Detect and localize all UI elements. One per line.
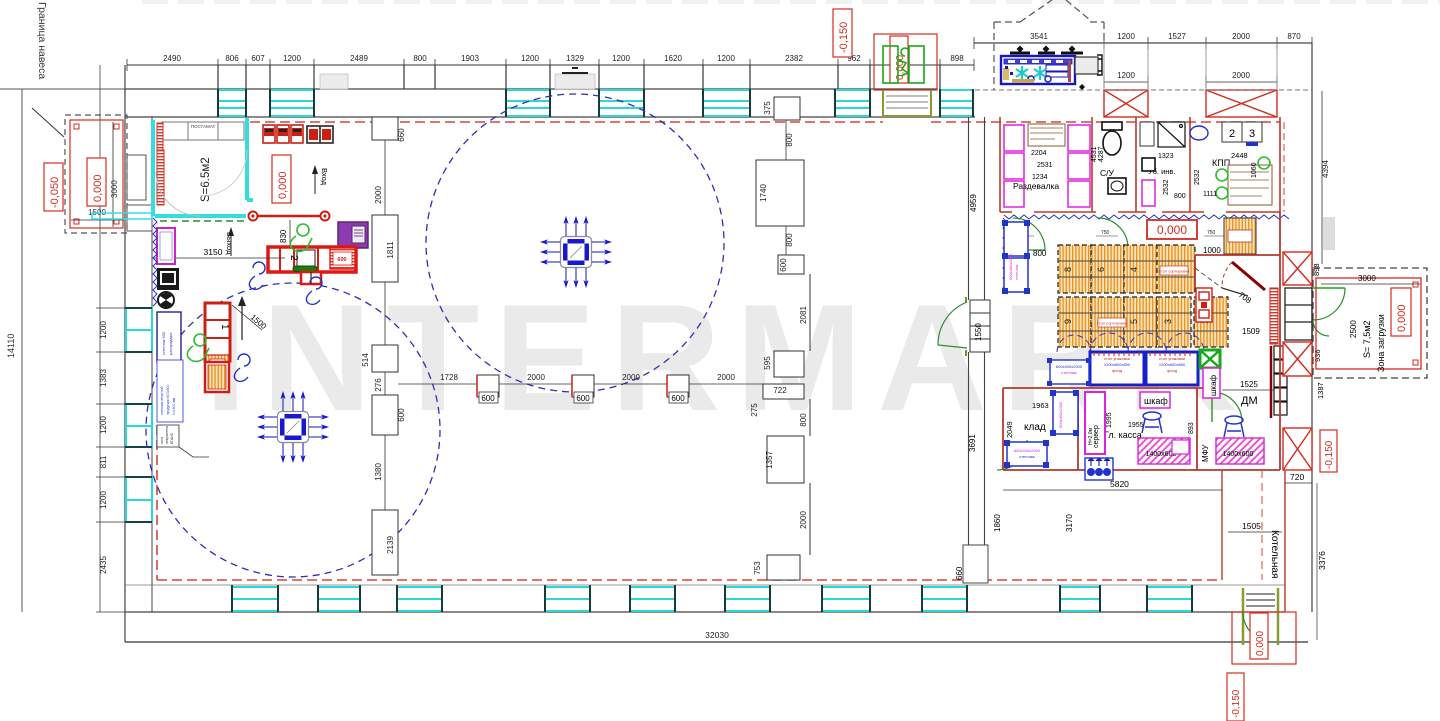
svg-text:811: 811 [99,455,108,468]
svg-text:1200: 1200 [521,54,539,63]
svg-text:3691: 3691 [968,434,977,452]
svg-text:4531: 4531 [1091,146,1098,162]
svg-text:0,000: 0,000 [1396,304,1408,332]
svg-text:2049: 2049 [1005,421,1014,438]
svg-text:S= 7,5м2: S= 7,5м2 [1362,321,1372,358]
svg-text:3376: 3376 [1317,551,1327,570]
svg-text:1527: 1527 [1168,32,1186,41]
svg-text:32030: 32030 [705,630,729,640]
svg-text:276: 276 [374,378,383,392]
svg-text:898: 898 [950,54,964,63]
svg-text:6: 6 [1096,267,1106,272]
svg-text:2: 2 [1229,128,1235,140]
svg-text:2435: 2435 [99,556,108,574]
svg-text:1550: 1550 [974,323,983,341]
svg-text:607: 607 [251,54,265,63]
svg-text:800: 800 [413,54,427,63]
svg-text:0,000: 0,000 [92,174,104,202]
svg-text:600х400х2000: 600х400х2000 [1008,253,1013,280]
svg-text:2531: 2531 [1037,162,1053,169]
svg-text:2000: 2000 [1232,71,1250,80]
svg-text:600х400х2000: 600х400х2000 [1014,448,1041,453]
svg-text:4394: 4394 [1321,160,1330,178]
svg-text:800: 800 [785,233,794,247]
svg-text:1200: 1200 [99,491,108,509]
svg-text:753: 753 [753,561,762,575]
svg-text:1509: 1509 [1242,327,1260,336]
svg-text:14110: 14110 [6,334,16,358]
svg-text:3: 3 [1163,319,1173,324]
svg-text:2000: 2000 [799,511,808,529]
svg-text:1728: 1728 [440,373,458,382]
svg-text:893: 893 [1188,422,1195,434]
svg-text:1620: 1620 [664,54,682,63]
svg-text:2139: 2139 [386,536,395,554]
svg-text:936: 936 [1313,349,1322,362]
svg-text:2000: 2000 [1232,32,1250,41]
svg-text:870: 870 [1287,32,1301,41]
svg-text:0,000: 0,000 [895,55,906,80]
svg-text:3000: 3000 [1358,274,1376,283]
svg-text:0,000: 0,000 [1157,223,1187,237]
svg-text:1200: 1200 [1117,71,1135,80]
svg-text:3170: 3170 [1065,514,1074,532]
svg-text:ПОСТАМАТ: ПОСТАМАТ [191,124,216,129]
svg-text:1234: 1234 [1032,174,1048,181]
svg-text:2081: 2081 [799,306,808,324]
svg-text:2000: 2000 [527,373,545,382]
svg-text:800: 800 [1174,193,1186,200]
svg-text:Вход: Вход [320,168,329,186]
svg-text:1811: 1811 [386,241,395,259]
svg-text:1963: 1963 [1032,401,1049,410]
svg-text:-0,050: -0,050 [49,177,61,208]
svg-text:3000: 3000 [110,180,119,198]
svg-text:600: 600 [397,408,406,422]
svg-text:1955: 1955 [1128,422,1144,429]
svg-text:0,000: 0,000 [1255,631,1266,656]
svg-text:1525: 1525 [1240,380,1258,389]
svg-text:ДМ: ДМ [1241,395,1258,407]
svg-text:1200х800х850: 1200х800х850 [1159,362,1186,367]
svg-text:1200: 1200 [283,54,301,63]
svg-text:продукции 600х400: продукции 600х400 [166,385,170,415]
svg-text:1200: 1200 [99,321,108,339]
svg-text:Гл. касса: Гл. касса [1104,430,1142,440]
svg-text:600: 600 [671,394,685,403]
svg-text:2489: 2489 [350,54,368,63]
svg-text:h=1600 мм: h=1600 мм [172,397,176,415]
svg-text:4: 4 [1129,267,1139,272]
svg-text:375: 375 [763,101,772,115]
svg-text:275: 275 [750,403,759,417]
svg-text:600: 600 [576,394,590,403]
svg-text:КПП: КПП [1212,158,1230,168]
svg-text:1200: 1200 [612,54,630,63]
svg-text:2382: 2382 [785,54,803,63]
svg-text:2: 2 [288,255,299,261]
svg-text:4959: 4959 [969,194,978,212]
svg-text:стол упаковки: стол упаковки [1159,356,1185,361]
svg-text:2204: 2204 [1031,150,1047,157]
svg-text:1740: 1740 [759,184,768,202]
svg-text:2532: 2532 [1194,169,1201,185]
svg-text:1200х800х850: 1200х800х850 [1104,362,1131,367]
svg-text:стол сортировки: стол сортировки [1097,321,1127,326]
svg-text:600х400х2000: 600х400х2000 [1058,401,1063,428]
svg-text:зона: зона [160,437,164,444]
svg-text:Раздевалка: Раздевалка [1013,181,1059,191]
svg-text:1383: 1383 [99,369,108,387]
svg-text:-0,150: -0,150 [838,22,850,53]
svg-text:1: 1 [219,324,230,330]
svg-text:1200: 1200 [1117,32,1135,41]
svg-text:2532: 2532 [1163,179,1170,195]
svg-text:8: 8 [1063,267,1073,272]
svg-text:1860: 1860 [993,514,1002,532]
svg-text:H=2,0м: H=2,0м [1088,428,1094,445]
svg-text:шкаф: шкаф [1144,396,1168,406]
svg-text:2000: 2000 [622,373,640,382]
svg-text:-0,150: -0,150 [1231,689,1242,718]
svg-text:720: 720 [1290,472,1304,482]
svg-text:5: 5 [1129,319,1139,324]
svg-text:ЕГАИС: ЕГАИС [170,432,174,444]
svg-text:2500: 2500 [1349,320,1358,338]
svg-text:1329: 1329 [566,54,584,63]
svg-text:1380: 1380 [374,463,383,481]
svg-text:660: 660 [397,128,406,142]
svg-text:3: 3 [1249,128,1255,140]
svg-text:фонд: фонд [1167,368,1178,373]
svg-text:-0,150: -0,150 [1324,440,1335,469]
svg-text:1200: 1200 [99,416,108,434]
svg-text:стеллаж: стеллаж [1014,264,1019,280]
svg-text:1903: 1903 [461,54,479,63]
svg-text:800: 800 [1033,249,1047,258]
svg-text:1323: 1323 [1158,153,1174,160]
svg-text:фонд: фонд [1112,368,1123,373]
svg-text:722: 722 [773,386,787,395]
svg-text:2000: 2000 [717,373,735,382]
svg-text:С/У: С/У [1100,168,1115,178]
svg-text:600х400х2000: 600х400х2000 [1056,364,1083,369]
svg-text:Граница навеса: Граница навеса [36,2,48,79]
svg-text:клад: клад [1024,422,1046,433]
svg-text:Котельная: Котельная [1269,530,1280,578]
svg-text:3541: 3541 [1030,32,1048,41]
svg-text:1995: 1995 [1106,412,1113,428]
svg-text:1387: 1387 [1316,382,1325,399]
svg-text:МФУ: МФУ [1201,444,1210,462]
svg-text:2490: 2490 [163,54,181,63]
svg-text:распродажа: распродажа [168,332,173,355]
svg-text:2448: 2448 [1231,151,1248,160]
svg-text:0,000: 0,000 [277,171,289,199]
svg-text:стеллаж: стеллаж [1019,454,1035,459]
svg-text:1505: 1505 [1242,521,1261,531]
svg-text:Зона загрузки: Зона загрузки [1376,314,1386,372]
svg-text:1400х600: 1400х600 [1223,451,1254,458]
svg-text:2000: 2000 [374,186,383,204]
svg-text:9: 9 [1063,319,1073,324]
svg-text:830: 830 [279,229,288,243]
svg-text:1200: 1200 [717,54,735,63]
svg-text:600: 600 [481,394,495,403]
svg-text:1357: 1357 [765,451,774,469]
svg-text:600: 600 [779,258,788,272]
svg-text:стеллаж 600: стеллаж 600 [161,331,166,355]
svg-text:стол сортировки: стол сортировки [1159,269,1189,274]
svg-text:800: 800 [785,133,794,147]
svg-text:1060: 1060 [1251,162,1258,178]
svg-text:5820: 5820 [1110,479,1129,489]
svg-text:595: 595 [763,356,772,370]
svg-text:514: 514 [361,353,370,367]
svg-text:стол упаковки: стол упаковки [1104,356,1130,361]
svg-text:стеллаж печатной: стеллаж печатной [160,386,164,415]
svg-text:750: 750 [1207,230,1216,236]
svg-text:стеллаж: стеллаж [1061,370,1077,375]
svg-text:шкаф: шкаф [1209,374,1218,396]
svg-text:сервер: сервер [1093,425,1100,448]
svg-text:1000: 1000 [1203,246,1221,255]
svg-text:3150: 3150 [204,247,223,257]
svg-text:покупателя: покупателя [165,426,169,444]
svg-text:660: 660 [955,566,964,580]
svg-text:1111: 1111 [1203,191,1217,198]
svg-text:4287: 4287 [1098,146,1105,162]
svg-text:800: 800 [799,413,808,427]
svg-text:600: 600 [337,257,346,263]
svg-text:750: 750 [1101,230,1110,236]
svg-text:806: 806 [225,54,239,63]
